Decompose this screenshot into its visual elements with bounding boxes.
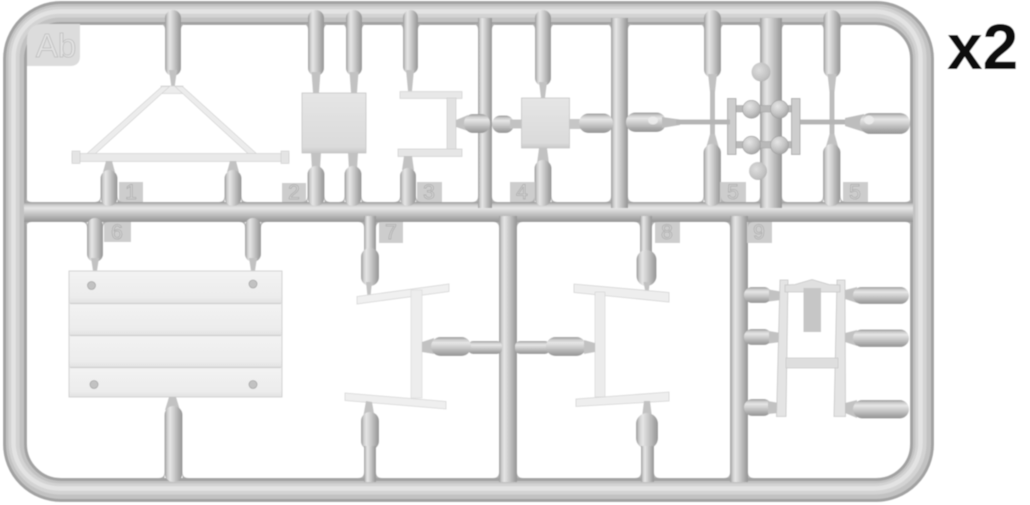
svg-text:1: 1 [125,181,137,204]
svg-text:7: 7 [385,221,397,244]
svg-text:6: 6 [111,221,123,244]
svg-text:4: 4 [516,181,528,204]
svg-text:Ab: Ab [36,27,76,64]
svg-text:5: 5 [727,181,739,204]
svg-text:8: 8 [661,221,673,244]
svg-text:2: 2 [288,181,300,204]
svg-text:x2: x2 [947,11,1018,83]
svg-text:9: 9 [753,221,765,244]
svg-text:3: 3 [423,181,435,204]
svg-text:5: 5 [849,181,861,204]
